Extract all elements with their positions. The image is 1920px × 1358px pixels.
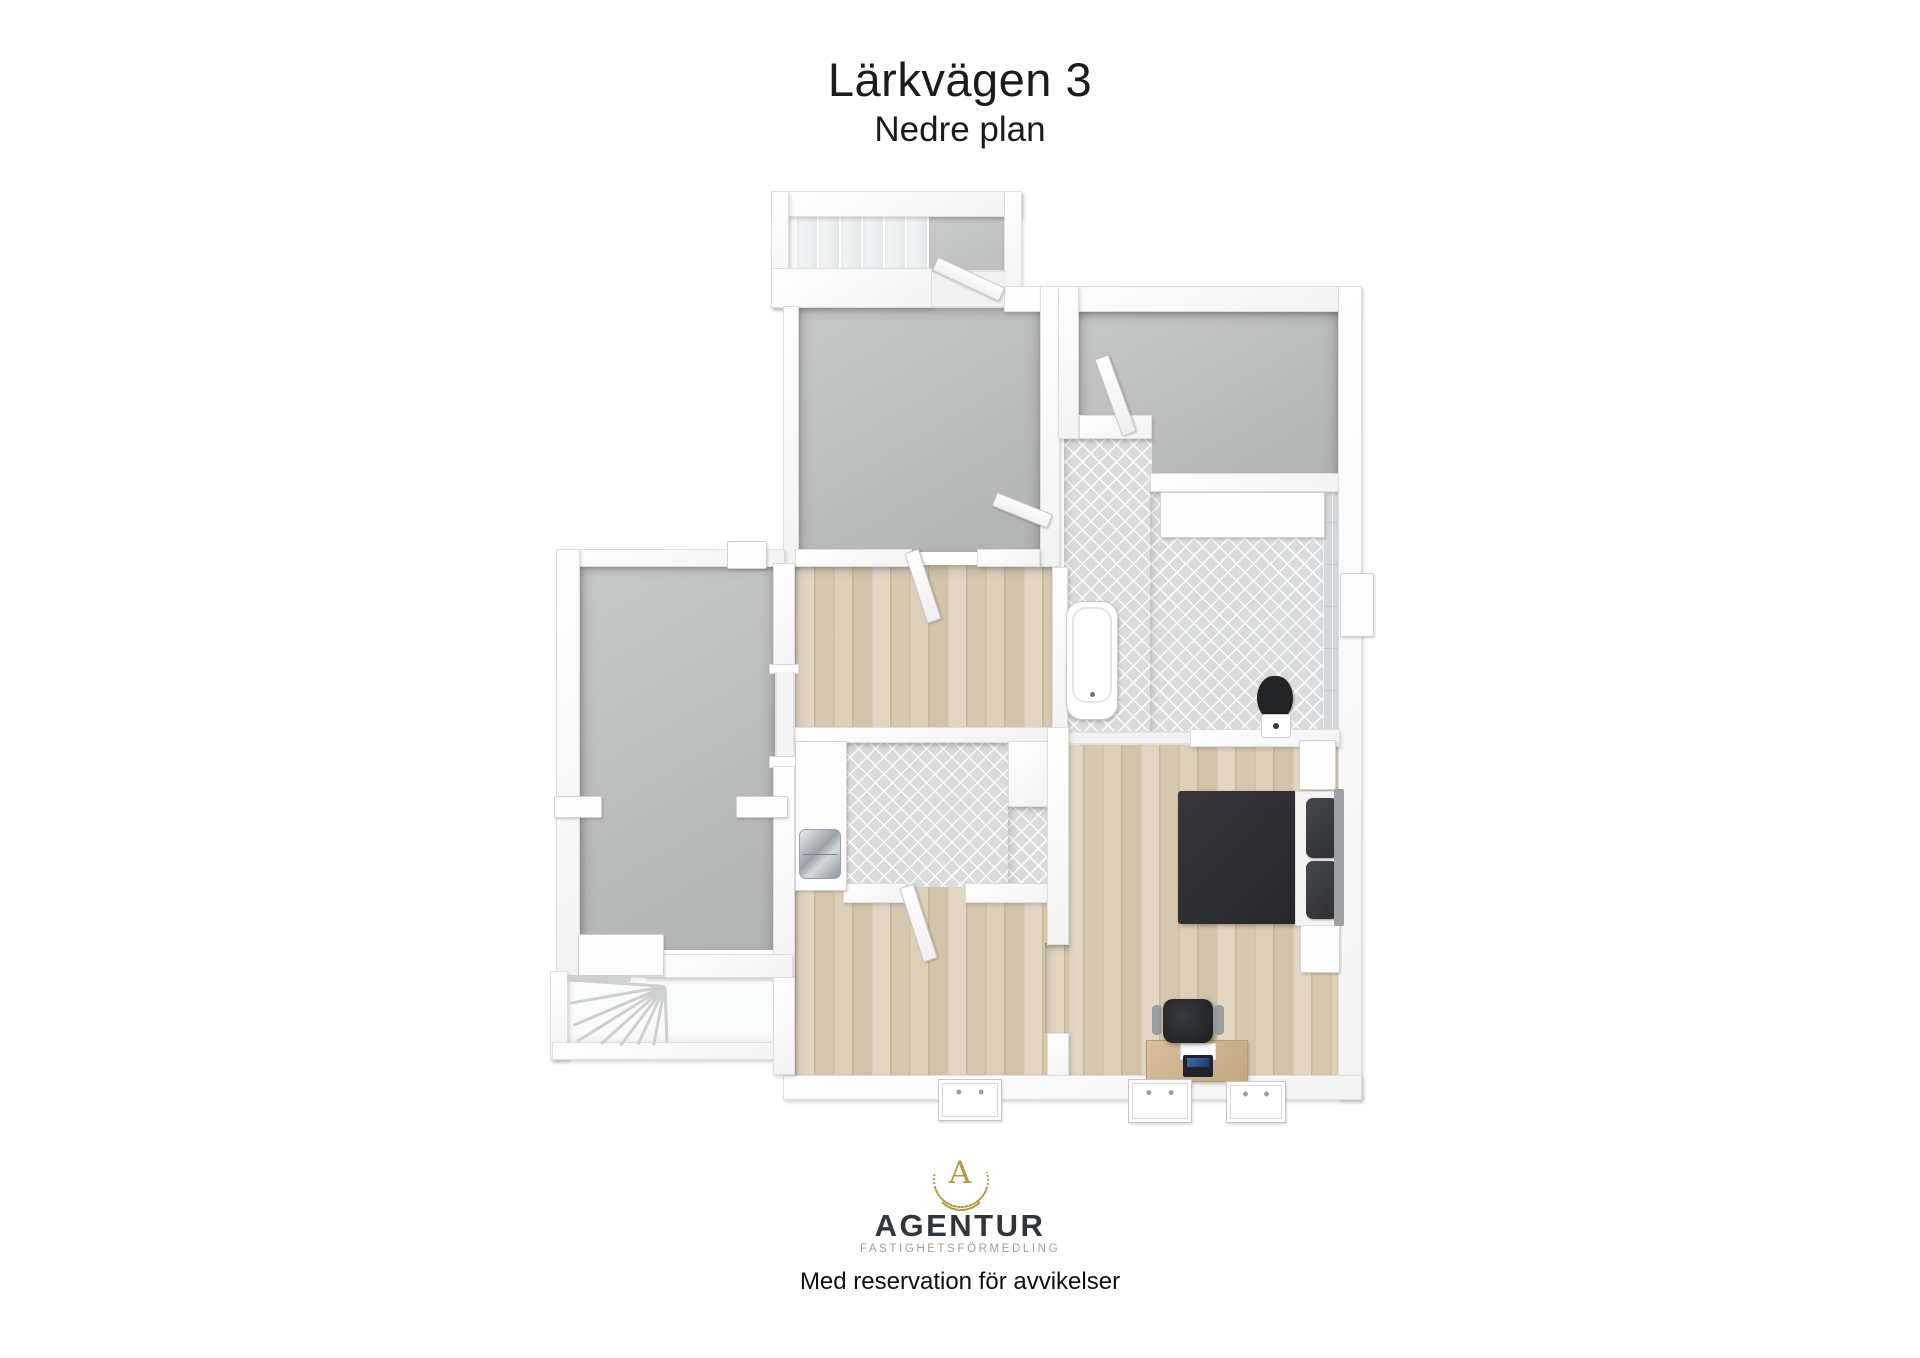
brand-name: AGENTUR [0,1208,1920,1244]
agentur-logo-icon: A [927,1148,993,1210]
laundry-sink [799,829,841,879]
stair-tread [907,215,929,269]
nightstand [1299,740,1336,790]
page: Lärkvägen 3 Nedre plan A AGENTUR FASTIGH… [0,0,1920,1358]
wall-cabinet [727,541,767,569]
bedroom-doorway-floor [1045,943,1069,1033]
wall-room-c-bottom [1150,473,1340,492]
wall-stairwell-bottom [771,268,932,308]
brand-subtitle: FASTIGHETSFÖRMEDLING [0,1243,1920,1255]
stair-tread [819,215,841,269]
wall-left-room-right-upper [773,563,795,672]
chair-armrest [1152,1005,1162,1035]
wall-stairwell-top [771,191,1022,217]
wall-bedroom-divider-upper [1047,727,1069,945]
wall-laundry-bottom-left [843,883,907,903]
wall-left-exterior [556,549,580,977]
wall-laundry-notch [1008,741,1052,807]
radiator-left-wall [554,796,602,818]
wall-laundry-bottom-right [965,883,1052,903]
doorway-left-room [775,672,795,758]
bathroom-vanity [1160,492,1325,538]
wall-room-c-left [1058,286,1079,439]
radiator-right-wall [736,796,788,818]
wall-stairs-bottom-right [773,977,795,1075]
wall-bedroom-divider-stub [1047,1033,1069,1077]
stair-tread [863,215,885,269]
wall-hall-top-right [977,549,1040,567]
wall-hall-top-left [795,549,912,567]
room-top-middle-floor [797,306,1040,552]
laptop [1183,1055,1213,1077]
bed-duvet [1178,791,1298,924]
window [938,1079,1002,1121]
stair-tread [885,215,907,269]
stair-tread [797,215,819,269]
wall-left-room-bottom [645,954,793,978]
disclaimer-text: Med reservation för avvikelser [0,1268,1920,1296]
nightstand [1300,921,1340,973]
stair-tread [841,215,863,269]
chair-armrest [1214,1005,1224,1035]
bathroom-window-right [1340,573,1374,637]
wall-right-exterior [1338,286,1362,1100]
room-left-floor [580,563,775,950]
wall-room-b-left [783,306,799,567]
threshold-bath-bedroom [1064,731,1190,745]
window [1128,1079,1192,1123]
window [1226,1081,1286,1123]
wall-stairs-bottom [552,1042,792,1060]
laundry-floor [843,741,1010,887]
bathtub [1066,601,1118,720]
bed-headboard [1334,789,1344,926]
toilet-base [1261,714,1291,738]
laundry-floor-ext [1008,805,1052,887]
stair-platform [578,934,664,976]
stairwell-bottom-floor [564,973,790,1043]
office-chair [1163,999,1213,1043]
logo-monogram: A [927,1155,993,1191]
